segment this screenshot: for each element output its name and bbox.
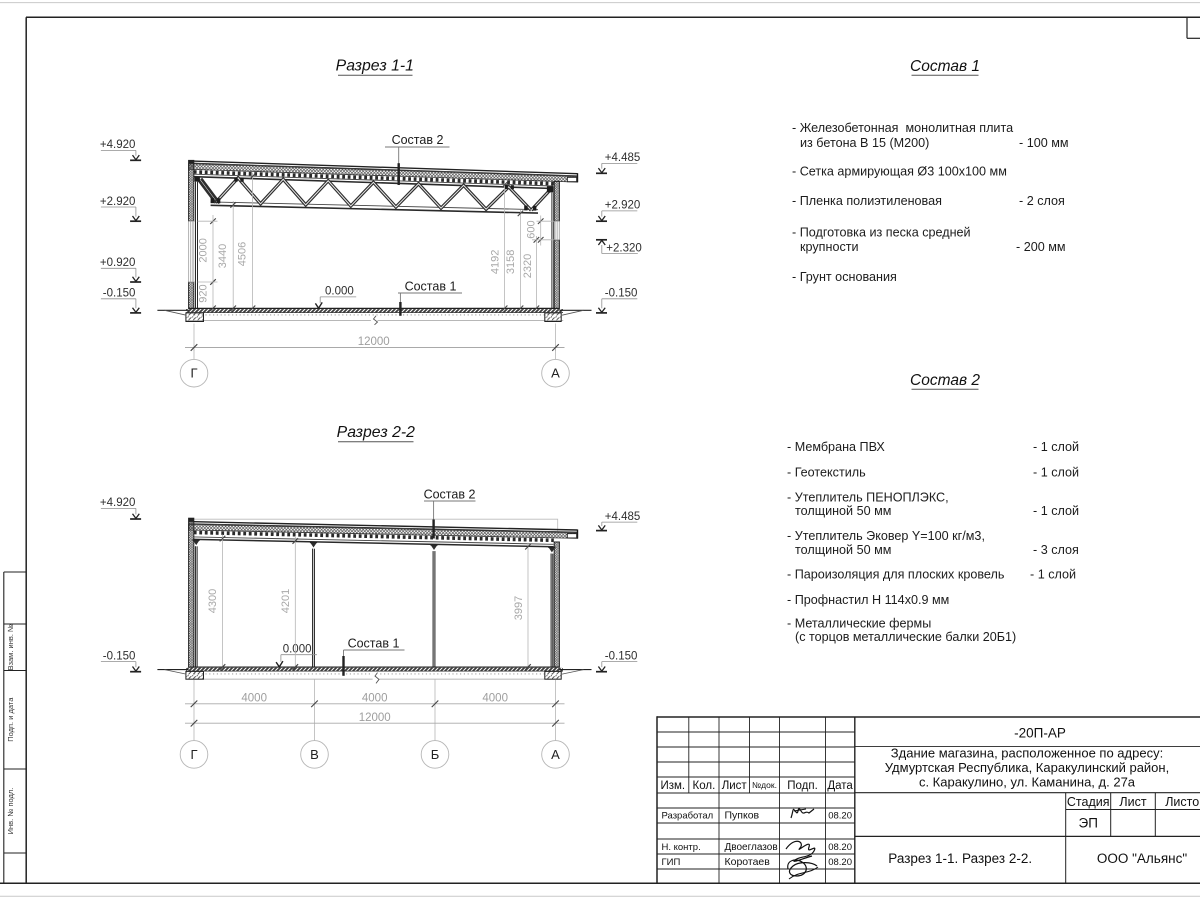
svg-text:Разрез 1-1: Разрез 1-1 xyxy=(336,58,414,75)
svg-text:Г: Г xyxy=(190,366,197,381)
svg-text:Состав 1: Состав 1 xyxy=(405,279,457,293)
svg-text:Лист: Лист xyxy=(1119,795,1146,809)
svg-text:08.20: 08.20 xyxy=(828,842,852,853)
svg-text:+2.920: +2.920 xyxy=(100,196,136,208)
svg-text:№док.: №док. xyxy=(752,780,777,790)
svg-text:+4.485: +4.485 xyxy=(605,511,641,523)
svg-text:3997: 3997 xyxy=(513,596,525,620)
svg-text:12000: 12000 xyxy=(359,712,391,724)
svg-text:ООО "Альянс": ООО "Альянс" xyxy=(1097,851,1187,866)
svg-text:- Утеплитель ПЕНОПЛЭКС,: - Утеплитель ПЕНОПЛЭКС, xyxy=(787,490,949,504)
svg-text:- Грунт основания: - Грунт основания xyxy=(792,270,897,284)
svg-text:Подп.: Подп. xyxy=(787,780,818,792)
svg-text:2000: 2000 xyxy=(198,238,210,262)
svg-text:толщиной 50 мм: толщиной 50 мм xyxy=(795,543,891,557)
svg-text:крупности: крупности xyxy=(800,240,859,254)
svg-text:3440: 3440 xyxy=(217,244,229,268)
svg-text:- 1 слой: - 1 слой xyxy=(1033,466,1079,480)
svg-text:08.20: 08.20 xyxy=(828,857,852,868)
svg-text:-0.150: -0.150 xyxy=(605,288,638,300)
svg-text:Разрез 2-2: Разрез 2-2 xyxy=(337,424,415,441)
svg-text:+4.920: +4.920 xyxy=(100,497,136,509)
svg-text:+2.920: +2.920 xyxy=(605,200,641,212)
svg-text:-0.150: -0.150 xyxy=(103,288,136,300)
svg-text:Г: Г xyxy=(190,747,197,762)
svg-text:+4.920: +4.920 xyxy=(100,139,136,151)
svg-text:4506: 4506 xyxy=(236,242,248,266)
svg-text:- 200 мм: - 200 мм xyxy=(1016,240,1066,254)
svg-text:- Профнастил Н 114х0.9 мм: - Профнастил Н 114х0.9 мм xyxy=(787,593,949,607)
svg-text:-0.150: -0.150 xyxy=(605,650,638,662)
svg-text:Состав 1: Состав 1 xyxy=(348,636,400,650)
svg-text:А: А xyxy=(551,747,560,762)
svg-text:из бетона В 15 (М200): из бетона В 15 (М200) xyxy=(800,136,929,150)
svg-text:- 100 мм: - 100 мм xyxy=(1019,136,1069,150)
svg-text:4000: 4000 xyxy=(362,693,388,705)
svg-text:- Железобетонная монолитная п: - Железобетонная монолитная плита xyxy=(792,121,1013,135)
svg-text:Удмуртская Республика, Каракул: Удмуртская Республика, Каракулинский рай… xyxy=(885,760,1169,775)
svg-text:Кол.: Кол. xyxy=(693,780,716,792)
svg-text:-0.150: -0.150 xyxy=(103,650,136,662)
svg-text:А: А xyxy=(551,366,560,381)
svg-text:Лист: Лист xyxy=(722,780,748,792)
svg-text:- 1 слой: - 1 слой xyxy=(1030,567,1076,581)
svg-text:Состав 1: Состав 1 xyxy=(910,58,980,75)
svg-text:-20П-АР: -20П-АР xyxy=(1014,726,1066,741)
svg-text:08.20: 08.20 xyxy=(828,811,852,822)
svg-text:- 3 слоя: - 3 слоя xyxy=(1033,543,1079,557)
svg-text:12000: 12000 xyxy=(358,336,390,348)
svg-text:4201: 4201 xyxy=(280,589,292,613)
svg-text:с. Каракулино, ул. Каманина, д: с. Каракулино, ул. Каманина, д. 27а xyxy=(919,775,1136,790)
svg-text:4000: 4000 xyxy=(482,693,508,705)
svg-text:- Пленка полиэтиленовая: - Пленка полиэтиленовая xyxy=(792,194,942,208)
svg-text:- Металлические фермы: - Металлические фермы xyxy=(787,616,931,630)
svg-text:920: 920 xyxy=(198,284,210,302)
svg-text:- Геотекстиль: - Геотекстиль xyxy=(787,466,866,480)
svg-text:0.000: 0.000 xyxy=(325,286,354,298)
svg-text:Б: Б xyxy=(431,747,440,762)
svg-text:Н. контр.: Н. контр. xyxy=(662,842,701,853)
svg-text:4300: 4300 xyxy=(207,589,219,613)
svg-text:- 2 слоя: - 2 слоя xyxy=(1019,194,1065,208)
svg-text:Здание магазина, расположенное: Здание магазина, расположенное по адресу… xyxy=(891,745,1163,760)
svg-text:Дата: Дата xyxy=(827,780,853,792)
svg-text:- 1 слой: - 1 слой xyxy=(1033,504,1079,518)
svg-text:- Утеплитель Эковер Y=100 кг/м: - Утеплитель Эковер Y=100 кг/м3, xyxy=(787,529,985,543)
svg-text:Стадия: Стадия xyxy=(1067,795,1110,809)
svg-text:Разработал: Разработал xyxy=(662,811,714,822)
svg-text:4000: 4000 xyxy=(241,693,267,705)
svg-text:+2.320: +2.320 xyxy=(606,242,642,254)
svg-text:Листов: Листов xyxy=(1165,795,1200,809)
svg-text:ГИП: ГИП xyxy=(662,857,681,868)
svg-text:(с торцов металлические балки: (с торцов металлические балки 20Б1) xyxy=(795,630,1016,644)
svg-text:Инв. № подл.: Инв. № подл. xyxy=(6,788,15,835)
svg-text:Состав 2: Состав 2 xyxy=(392,133,444,147)
svg-text:Подп. и дата: Подп. и дата xyxy=(6,697,15,742)
svg-text:4192: 4192 xyxy=(489,250,501,274)
svg-text:Разрез 1-1. Разрез 2-2.: Разрез 1-1. Разрез 2-2. xyxy=(888,851,1032,866)
svg-text:Пупков: Пупков xyxy=(725,810,760,822)
svg-text:Состав 2: Состав 2 xyxy=(910,372,980,389)
svg-text:+0.920: +0.920 xyxy=(100,257,136,269)
svg-text:- Пароизоляция для плоских кро: - Пароизоляция для плоских кровель xyxy=(787,567,1005,581)
svg-text:- 1 слой: - 1 слой xyxy=(1033,440,1079,454)
svg-text:Взам. инв. №: Взам. инв. № xyxy=(6,624,15,670)
svg-text:толщиной 50 мм: толщиной 50 мм xyxy=(795,504,891,518)
svg-text:Состав 2: Состав 2 xyxy=(424,487,476,501)
svg-text:+4.485: +4.485 xyxy=(605,152,641,164)
svg-text:- Подготовка из песка средней: - Подготовка из песка средней xyxy=(792,225,971,239)
svg-text:600: 600 xyxy=(526,220,538,238)
svg-text:Коротаев: Коротаев xyxy=(725,856,771,868)
svg-text:В: В xyxy=(310,747,319,762)
svg-text:Двоеглазов: Двоеглазов xyxy=(725,842,778,853)
svg-text:0.000: 0.000 xyxy=(283,643,312,655)
svg-text:- Мембрана ПВХ: - Мембрана ПВХ xyxy=(787,440,885,454)
svg-text:3158: 3158 xyxy=(505,250,517,274)
svg-text:2320: 2320 xyxy=(522,254,534,278)
svg-text:- Сетка армирующая Ø3 100х100: - Сетка армирующая Ø3 100х100 мм xyxy=(792,164,1007,178)
svg-text:Изм.: Изм. xyxy=(660,780,685,792)
svg-text:ЭП: ЭП xyxy=(1078,816,1097,831)
